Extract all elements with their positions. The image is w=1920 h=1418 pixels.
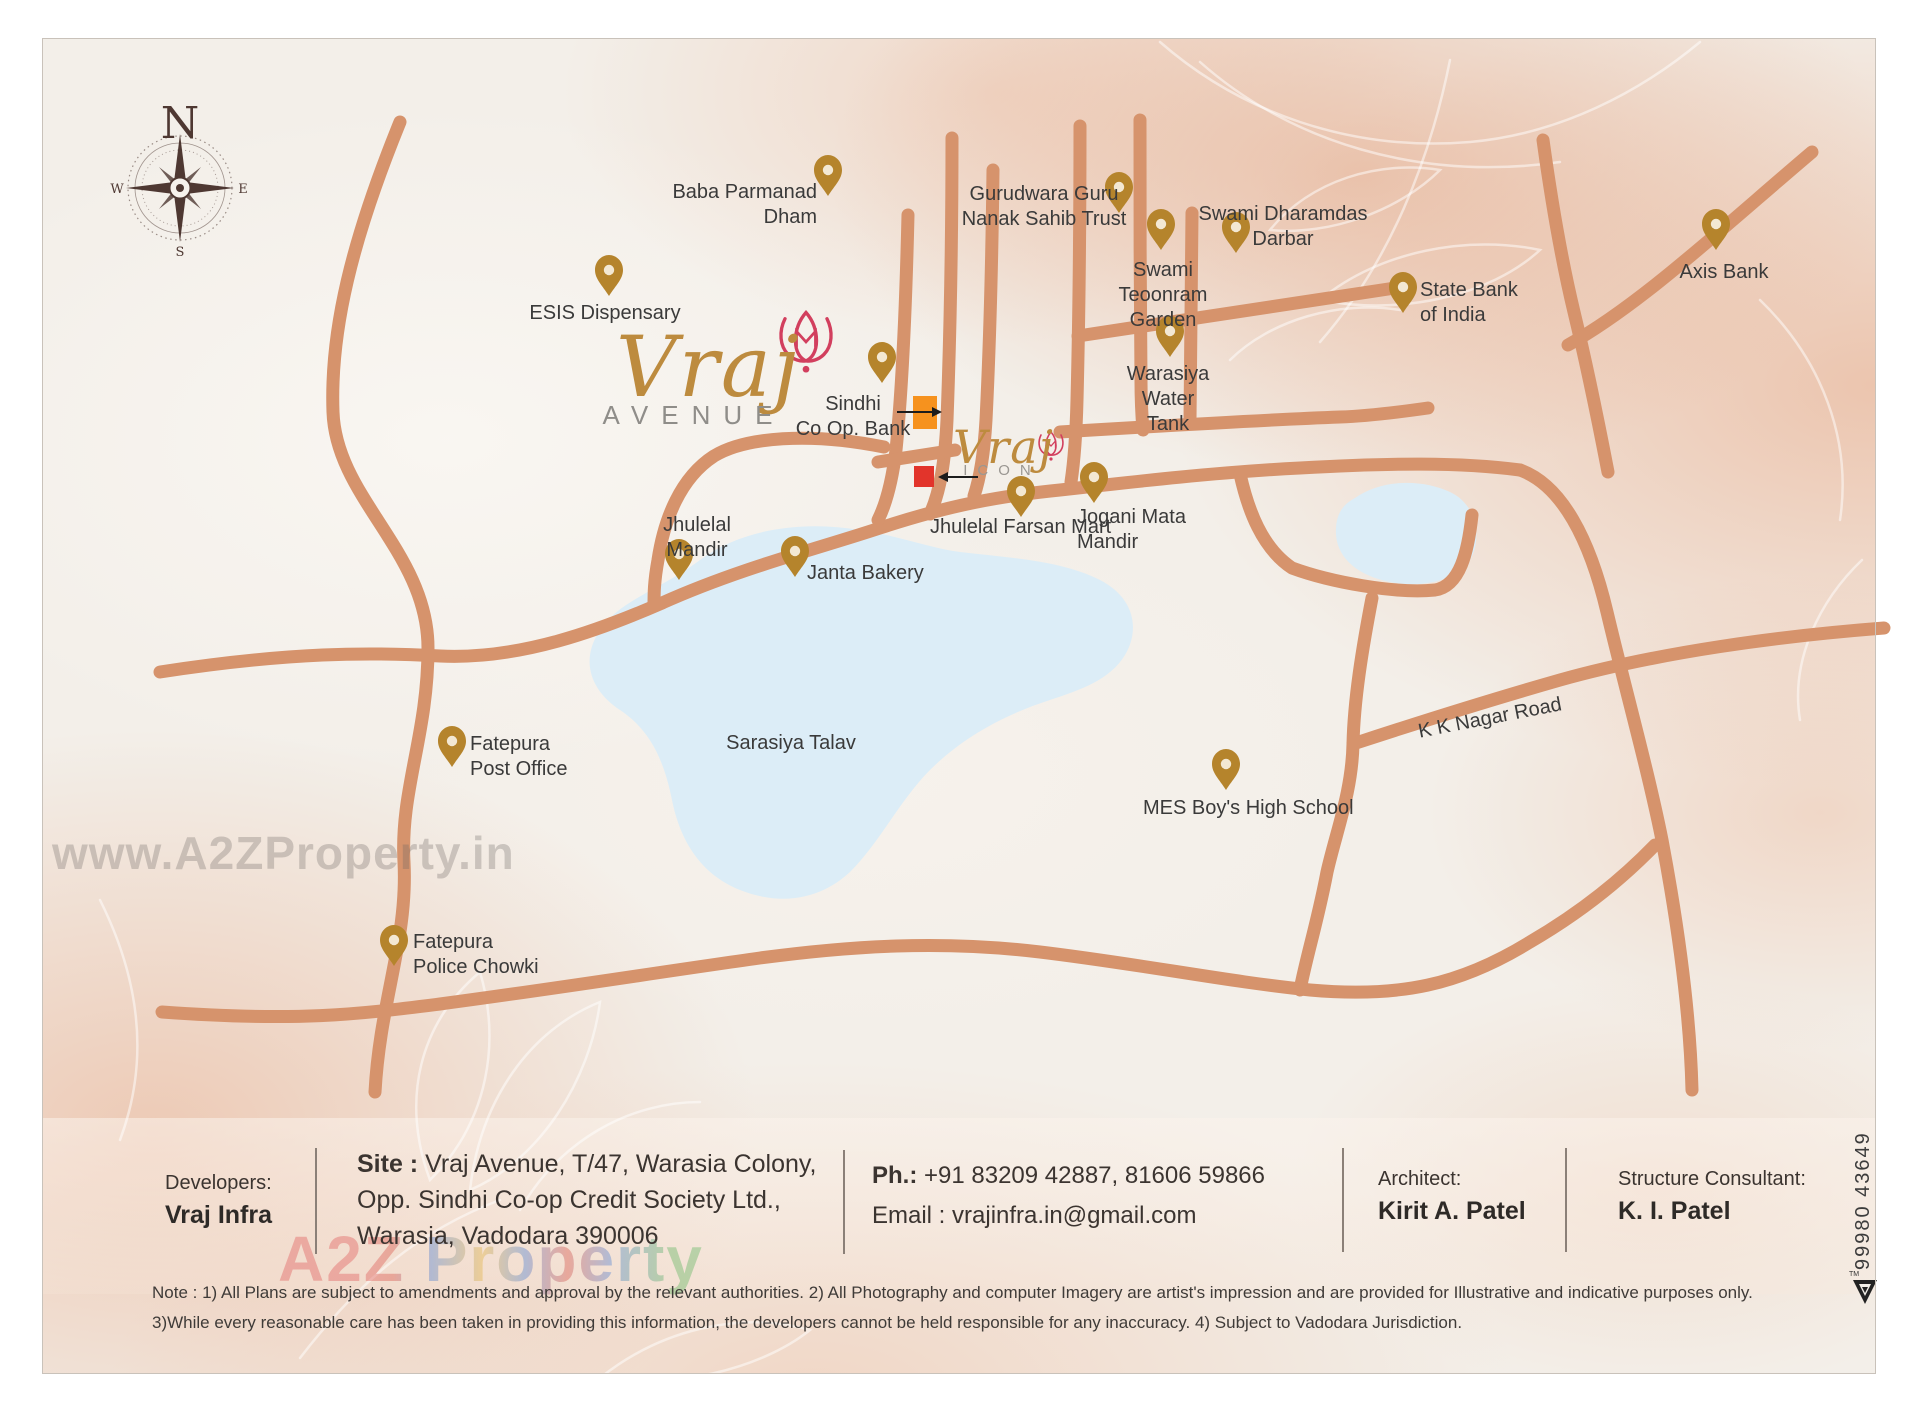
label-mes-high-school: MES Boy's High School (1143, 796, 1354, 821)
footer-divider-1 (315, 1148, 317, 1254)
label-gurudwara: Gurudwara Guru Nanak Sahib Trust (962, 182, 1127, 232)
label-baba-parmanad-dham: Baba Parmanad Dham (672, 180, 817, 230)
developers-block: Developers: Vraj Infra (165, 1172, 272, 1230)
site-line2: Opp. Sindhi Co-op Credit Society Ltd., (357, 1182, 816, 1218)
structure-consultant-block: Structure Consultant: K. I. Patel (1618, 1168, 1806, 1226)
watermark-a2zproperty-url: www.A2ZProperty.in (52, 826, 515, 880)
compass-w: W (110, 182, 124, 197)
architect-label: Architect: (1378, 1168, 1526, 1191)
location-map-poster: { "page": { "title": "Vraj Avenue Locati… (0, 0, 1920, 1418)
map-pins (380, 155, 1730, 966)
pin-jogani-mata-mandir (1080, 462, 1108, 503)
pin-fatepura-police-chowki (380, 925, 408, 966)
label-sarasiya-talav: Sarasiya Talav (726, 731, 856, 756)
label-swami-dharamdas: Swami Dharamdas Darbar (1199, 202, 1368, 252)
pin-sindhi-coop-bank (868, 342, 896, 383)
label-fatepura-post-office: Fatepura Post Office (470, 732, 567, 782)
developers-name: Vraj Infra (165, 1201, 272, 1230)
site-label: Site : (357, 1150, 418, 1178)
pin-baba-parmanad-dham (814, 155, 842, 196)
pin-swami-teoonram-garden (1147, 209, 1175, 250)
note-line2: 3)While every reasonable care has been t… (152, 1308, 1753, 1338)
pin-jhulelal-farsan-mart (1007, 476, 1035, 517)
label-sindhi-coop-bank: Sindhi Co Op. Bank (796, 392, 911, 442)
vraj-icon-logo-subtitle: ICON (963, 462, 1041, 479)
disclaimer-note: Note : 1) All Plans are subject to amend… (152, 1278, 1753, 1338)
label-warasiya-water-tank: Warasiya Water Tank (1127, 362, 1210, 436)
architect-block: Architect: Kirit A. Patel (1378, 1168, 1526, 1226)
footer-divider-4 (1565, 1148, 1567, 1252)
compass-n: N (161, 98, 200, 149)
developers-label: Developers: (165, 1172, 272, 1195)
pin-mes-high-school (1212, 749, 1240, 790)
compass-rose: N W E S (110, 98, 247, 260)
compass-e: E (238, 182, 248, 197)
pin-esis-dispensary (595, 255, 623, 296)
vraj-avenue-logo-subtitle: AVENUE (603, 400, 786, 431)
note-line1: Note : 1) All Plans are subject to amend… (152, 1278, 1753, 1308)
label-swami-teoonram: Swami Teoonram Garden (1119, 258, 1208, 332)
a2z-triangle-logo-icon: TM (1847, 1268, 1881, 1313)
label-jogani-mata-mandir: Jogani Mata Mandir (1077, 505, 1186, 555)
site-marker-vraj-icon (914, 466, 934, 487)
site-line3: Warasia, Vadodara 390006 (357, 1218, 816, 1254)
side-phone-number: 99980 43649 (1852, 1131, 1875, 1270)
compass-s: S (176, 245, 185, 260)
footer-divider-2 (843, 1150, 845, 1254)
label-jhulelal-mandir: Jhulelal Mandir (663, 513, 731, 563)
footer-divider-3 (1342, 1148, 1344, 1252)
consultant-label: Structure Consultant: (1618, 1168, 1806, 1191)
site-address-block: Site : Vraj Avenue, T/47, Warasia Colony… (357, 1146, 816, 1254)
contact-block: Ph.: +91 83209 42887, 81606 59866 Email … (872, 1156, 1265, 1236)
label-axis-bank: Axis Bank (1680, 260, 1769, 285)
consultant-name: K. I. Patel (1618, 1197, 1806, 1226)
pin-state-bank-of-india (1389, 272, 1417, 313)
label-janta-bakery: Janta Bakery (807, 561, 924, 586)
email-line: Email : vrajinfra.in@gmail.com (872, 1196, 1265, 1236)
phone-numbers: +91 83209 42887, 81606 59866 (917, 1162, 1265, 1189)
label-state-bank: State Bank of India (1420, 278, 1518, 328)
architect-name: Kirit A. Patel (1378, 1197, 1526, 1226)
pin-fatepura-post-office (438, 726, 466, 767)
svg-text:TM: TM (1849, 1271, 1859, 1278)
label-fatepura-police-chowki: Fatepura Police Chowki (413, 930, 539, 980)
phone-label: Ph.: (872, 1162, 917, 1189)
site-line1: Vraj Avenue, T/47, Warasia Colony, (418, 1150, 816, 1178)
